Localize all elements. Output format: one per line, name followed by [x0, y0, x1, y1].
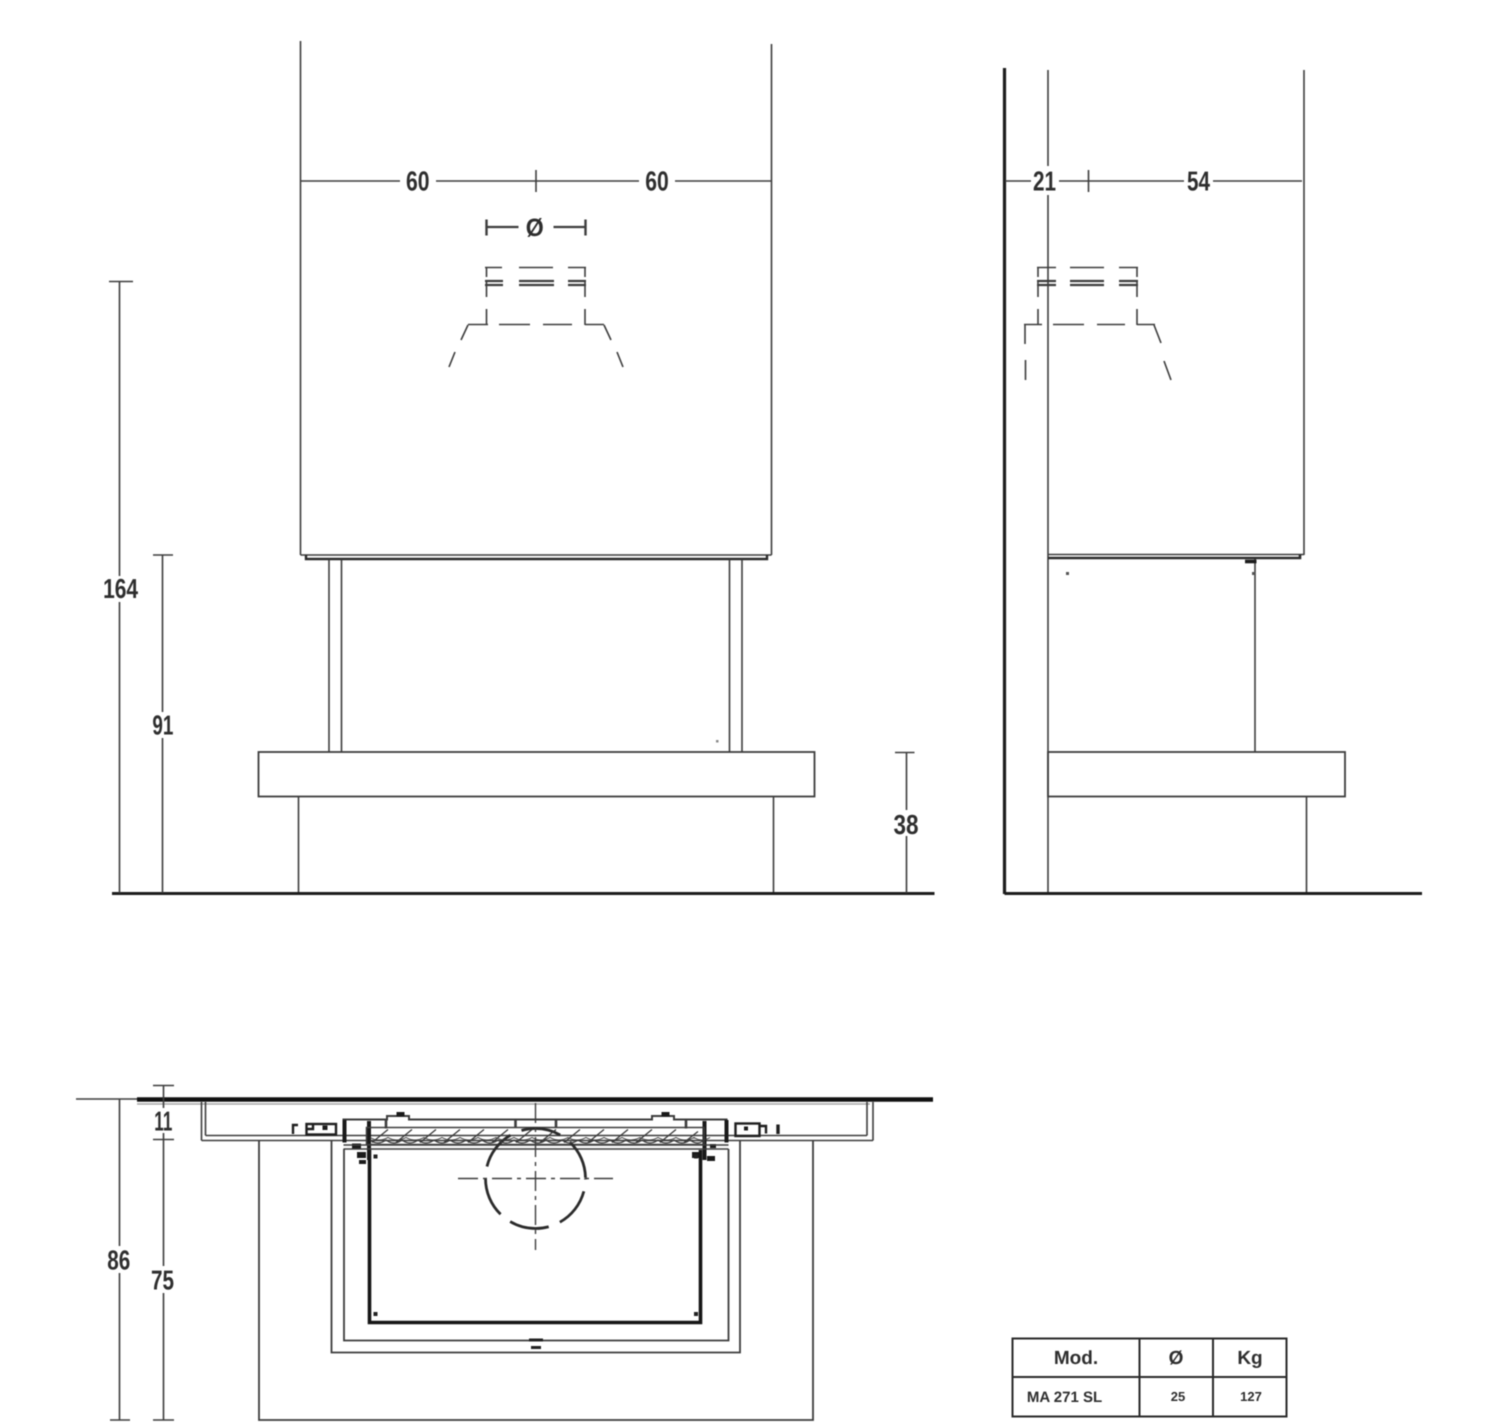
svg-text:Kg: Kg — [1237, 1348, 1262, 1369]
svg-text:38: 38 — [894, 809, 919, 840]
svg-text:21: 21 — [1033, 166, 1056, 197]
svg-text:Mod.: Mod. — [1054, 1348, 1098, 1369]
svg-text:25: 25 — [1171, 1389, 1185, 1404]
svg-text:11: 11 — [154, 1106, 172, 1137]
svg-text:60: 60 — [406, 166, 430, 197]
svg-text:164: 164 — [103, 573, 139, 604]
svg-text:MA 271 SL: MA 271 SL — [1027, 1389, 1102, 1406]
svg-text:86: 86 — [107, 1245, 130, 1276]
svg-text:127: 127 — [1240, 1389, 1262, 1404]
svg-text:54: 54 — [1187, 166, 1211, 197]
svg-text:Ø: Ø — [1169, 1348, 1184, 1369]
svg-text:60: 60 — [645, 166, 669, 197]
svg-text:Ø: Ø — [526, 214, 544, 242]
svg-text:75: 75 — [151, 1265, 174, 1296]
svg-text:91: 91 — [152, 710, 173, 741]
